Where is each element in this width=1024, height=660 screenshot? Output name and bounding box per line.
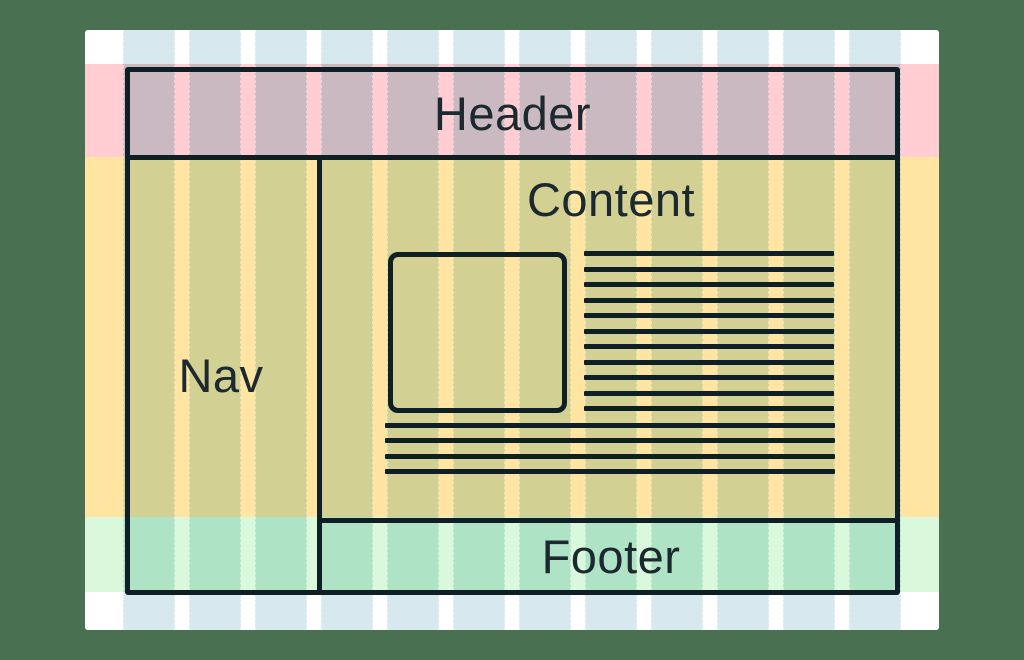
text-line xyxy=(584,313,834,318)
text-line xyxy=(584,344,834,349)
diagram-background: { "labels": { "header": "Header", "nav":… xyxy=(0,0,1024,660)
text-line xyxy=(385,469,835,474)
image-placeholder-box xyxy=(388,252,567,413)
text-line xyxy=(584,360,834,365)
text-line xyxy=(385,438,835,443)
text-line xyxy=(584,329,834,334)
text-line xyxy=(584,251,834,256)
text-line xyxy=(584,267,834,272)
text-line xyxy=(584,298,834,303)
header-divider-line xyxy=(125,155,900,160)
page-mockup: Header Nav Content Footer xyxy=(85,30,939,630)
text-line xyxy=(385,423,835,428)
text-line xyxy=(385,454,835,459)
text-line xyxy=(584,282,834,287)
nav-divider-line xyxy=(317,157,322,595)
footer-divider-line xyxy=(319,518,900,523)
text-line xyxy=(584,391,834,396)
text-line xyxy=(584,406,834,411)
text-line xyxy=(584,375,834,380)
